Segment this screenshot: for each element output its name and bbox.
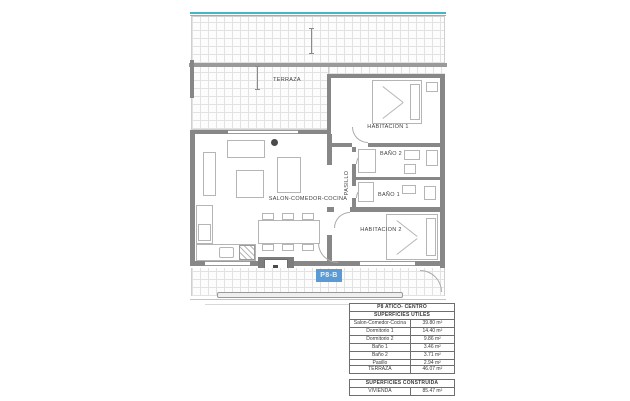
row-label: Dormitorio 2 xyxy=(350,336,411,343)
wall-hab1-bano2 xyxy=(331,143,445,147)
row-label: TERRAZA xyxy=(350,366,411,373)
wall-left-outer xyxy=(190,130,195,266)
row-value: 46.07 m² xyxy=(411,366,454,373)
dimension-annotation xyxy=(257,66,258,90)
salon-window xyxy=(228,130,298,134)
terrace-tiles-upper xyxy=(191,16,445,63)
table-row: Dormitorio 1 14.40 m² xyxy=(350,327,454,335)
wall-terrace-left xyxy=(190,60,194,98)
chair xyxy=(262,213,274,220)
floor-plan: P8-B TERRAZA HABITACION 1 BAÑO 2 BAÑO 1 … xyxy=(0,0,630,401)
row-value: 39.80 m² xyxy=(411,320,454,327)
unit-badge: P8-B xyxy=(316,269,342,282)
table-row: Baño 1 3.46 m² xyxy=(350,343,454,351)
table-subtitle: SUPERFICIES UTILES xyxy=(350,311,454,319)
gallery-edge-line xyxy=(190,299,446,300)
chair xyxy=(302,213,314,220)
gallery-railing xyxy=(217,292,403,298)
row-value: 3.71 m² xyxy=(411,352,454,359)
dimension-annotation xyxy=(255,89,260,90)
room-label-habitacion-2: HABITACION 2 xyxy=(349,227,413,233)
table-title: P8 ATICO- CENTRO xyxy=(350,304,454,311)
superficies-construida-table: SUPERFICIES CONSTRUIDA VIVIENDA 85.47 m² xyxy=(349,379,455,396)
toilet xyxy=(424,186,436,200)
row-label: Salon-Comedor-Cocina xyxy=(350,320,411,327)
door-arc-salon-exit xyxy=(318,243,338,263)
row-label: VIVIENDA xyxy=(350,388,411,395)
chair xyxy=(302,244,314,251)
table-row: Salon-Comedor-Cocina 39.80 m² xyxy=(350,319,454,327)
room-label-terraza: TERRAZA xyxy=(260,77,314,83)
sofa xyxy=(277,157,301,193)
row-label: Baño 2 xyxy=(350,352,411,359)
hab2-window xyxy=(360,261,415,266)
door-arc-hab2 xyxy=(334,212,350,228)
dining-table xyxy=(258,220,320,244)
sofa xyxy=(227,140,265,158)
row-value: 3.46 m² xyxy=(411,344,454,351)
column-dot xyxy=(271,139,278,146)
table-row: TERRAZA 46.07 m² xyxy=(350,366,454,373)
table-row: Baño 2 3.71 m² xyxy=(350,351,454,359)
dimension-annotation xyxy=(309,28,314,29)
pillow xyxy=(410,84,420,120)
table-row: VIVIENDA 85.47 m² xyxy=(350,387,454,395)
rug xyxy=(236,170,264,198)
dimension-annotation xyxy=(255,66,260,67)
row-value: 14.40 m² xyxy=(411,328,454,335)
room-label-pasillo: PASILLO xyxy=(344,163,350,203)
wall-terrace-divider xyxy=(327,74,331,134)
fridge xyxy=(198,224,211,241)
terraza-table: TERRAZA 46.07 m² xyxy=(349,365,455,374)
wall-banos-divider xyxy=(356,177,445,180)
dimension-annotation xyxy=(311,28,312,54)
room-label-bano-1: BAÑO 1 xyxy=(368,192,410,198)
pillow xyxy=(426,218,436,256)
row-value: 85.47 m² xyxy=(411,388,454,395)
row-value: 9.86 m² xyxy=(411,336,454,343)
superficies-utiles-table: P8 ATICO- CENTRO SUPERFICIES UTILES Salo… xyxy=(349,303,455,368)
table-row: Dormitorio 2 9.86 m² xyxy=(350,335,454,343)
terrace-rail-line xyxy=(190,12,446,14)
room-label-habitacion-1: HABITACION 1 xyxy=(356,124,420,130)
toilet xyxy=(426,150,438,166)
sofa xyxy=(203,152,216,196)
nightstand xyxy=(426,82,438,92)
wall-right-outer xyxy=(440,74,445,287)
chair xyxy=(282,213,294,220)
row-label: Baño 1 xyxy=(350,344,411,351)
table-title: SUPERFICIES CONSTRUIDA xyxy=(350,380,454,387)
dimension-annotation xyxy=(309,53,314,54)
chair xyxy=(282,244,294,251)
stove xyxy=(239,245,255,260)
room-label-bano-2: BAÑO 2 xyxy=(370,151,412,157)
chair xyxy=(262,244,274,251)
row-label: Dormitorio 1 xyxy=(350,328,411,335)
wall-hab1-top xyxy=(327,74,445,78)
kitchen-window xyxy=(205,261,250,266)
wall-salon-right-upper xyxy=(327,134,332,165)
kitchen-sink xyxy=(219,247,234,258)
washer xyxy=(404,164,416,174)
terrace-tiles-right-strip xyxy=(329,67,445,74)
